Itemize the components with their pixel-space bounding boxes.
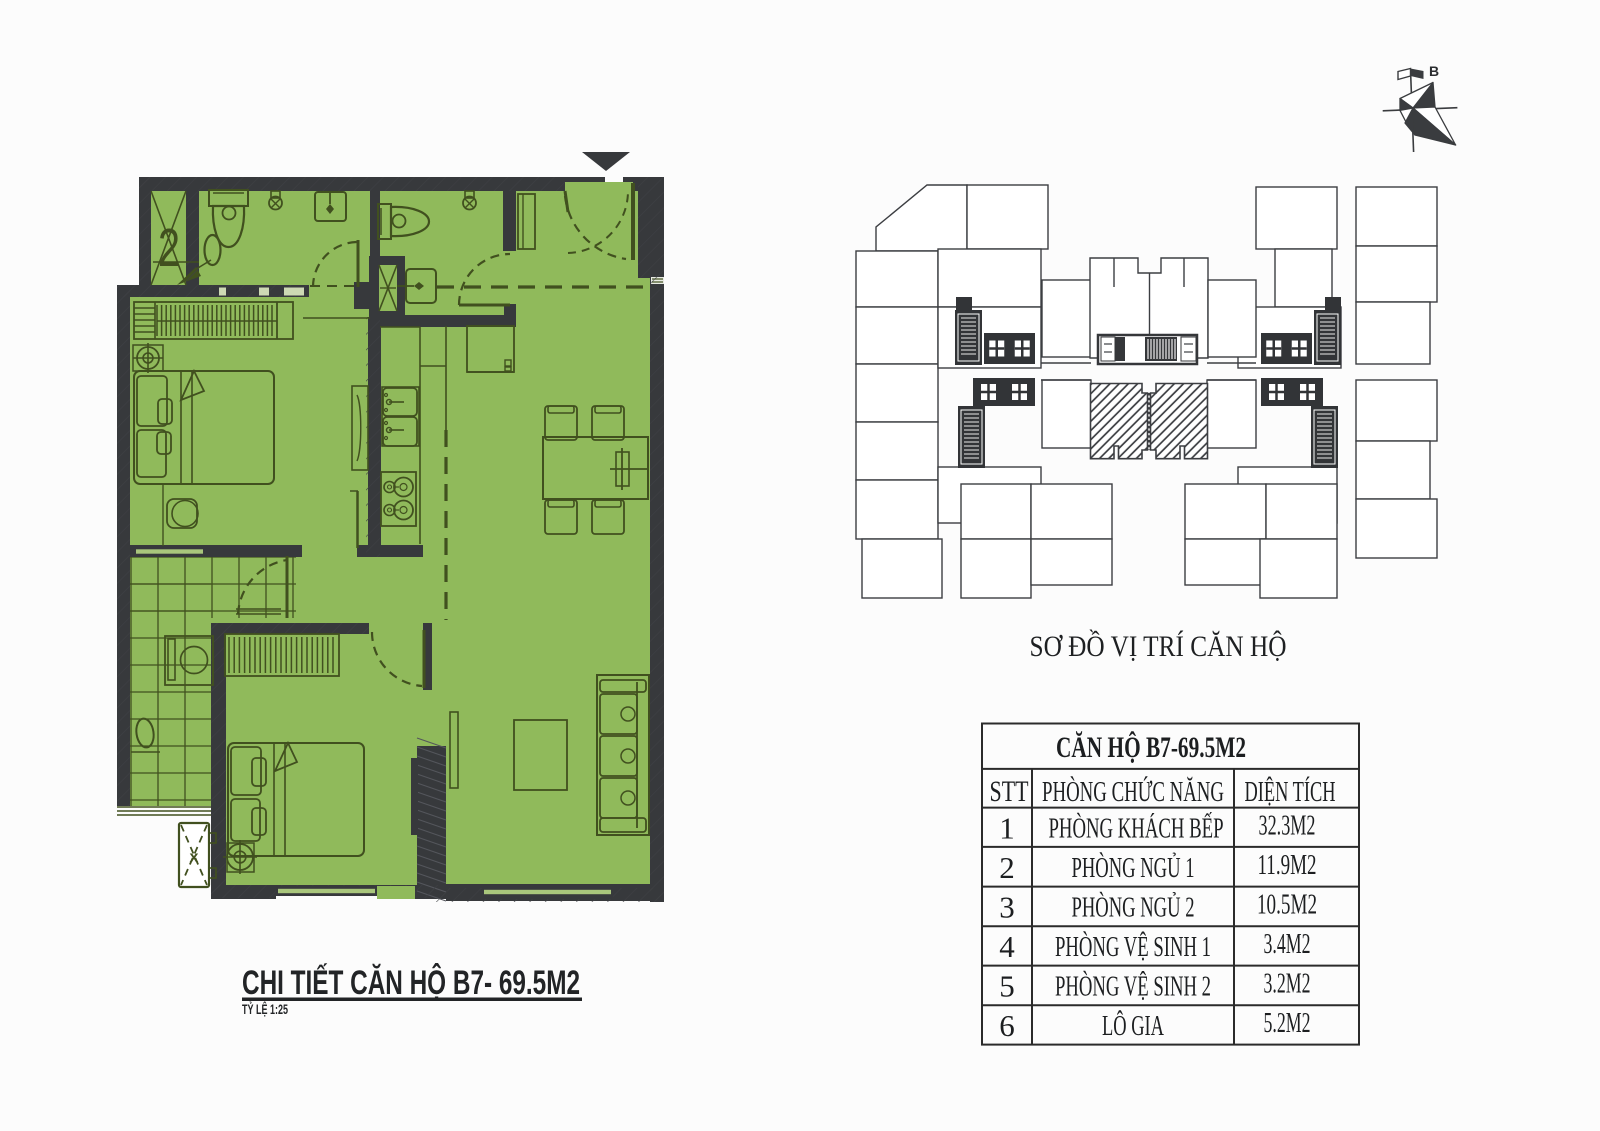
svg-text:CHI TIẾT CĂN HỘ B7- 69.5M2: CHI TIẾT CĂN HỘ B7- 69.5M2 bbox=[242, 963, 580, 1002]
svg-text:6: 6 bbox=[999, 1008, 1015, 1043]
svg-text:TỶ LỆ 1:25: TỶ LỆ 1:25 bbox=[242, 1002, 288, 1017]
svg-text:5: 5 bbox=[999, 968, 1015, 1003]
svg-text:PHÒNG NGỦ 2: PHÒNG NGỦ 2 bbox=[1072, 892, 1195, 923]
svg-text:10.5M2: 10.5M2 bbox=[1257, 889, 1317, 920]
svg-text:DIỆN TÍCH: DIỆN TÍCH bbox=[1245, 775, 1336, 808]
svg-text:3.2M2: 3.2M2 bbox=[1264, 968, 1311, 999]
svg-text:4: 4 bbox=[999, 929, 1015, 964]
svg-text:PHÒNG VỆ SINH 2: PHÒNG VỆ SINH 2 bbox=[1055, 971, 1211, 1002]
svg-text:PHÒNG VỆ SINH 1: PHÒNG VỆ SINH 1 bbox=[1055, 932, 1211, 963]
svg-text:STT: STT bbox=[990, 775, 1029, 808]
svg-text:PHÒNG CHỨC NĂNG: PHÒNG CHỨC NĂNG bbox=[1042, 775, 1224, 808]
svg-text:2: 2 bbox=[999, 850, 1015, 885]
svg-text:B: B bbox=[1429, 63, 1439, 79]
svg-text:PHÒNG KHÁCH BẾP: PHÒNG KHÁCH BẾP bbox=[1049, 812, 1224, 844]
svg-text:1: 1 bbox=[999, 810, 1015, 845]
svg-text:3: 3 bbox=[999, 889, 1015, 924]
svg-text:11.9M2: 11.9M2 bbox=[1258, 850, 1317, 881]
svg-text:3.4M2: 3.4M2 bbox=[1264, 929, 1311, 960]
svg-text:LÔ GIA: LÔ GIA bbox=[1102, 1011, 1165, 1042]
svg-text:x: x bbox=[190, 849, 199, 866]
svg-text:SƠ ĐỒ VỊ TRÍ CĂN HỘ: SƠ ĐỒ VỊ TRÍ CĂN HỘ bbox=[1030, 629, 1287, 663]
svg-text:PHÒNG NGỦ 1: PHÒNG NGỦ 1 bbox=[1072, 853, 1195, 884]
svg-text:5.2M2: 5.2M2 bbox=[1264, 1008, 1311, 1039]
svg-text:CĂN HỘ B7-69.5M2: CĂN HỘ B7-69.5M2 bbox=[1056, 731, 1246, 764]
svg-text:32.3M2: 32.3M2 bbox=[1259, 810, 1316, 841]
svg-text:2: 2 bbox=[158, 218, 180, 278]
